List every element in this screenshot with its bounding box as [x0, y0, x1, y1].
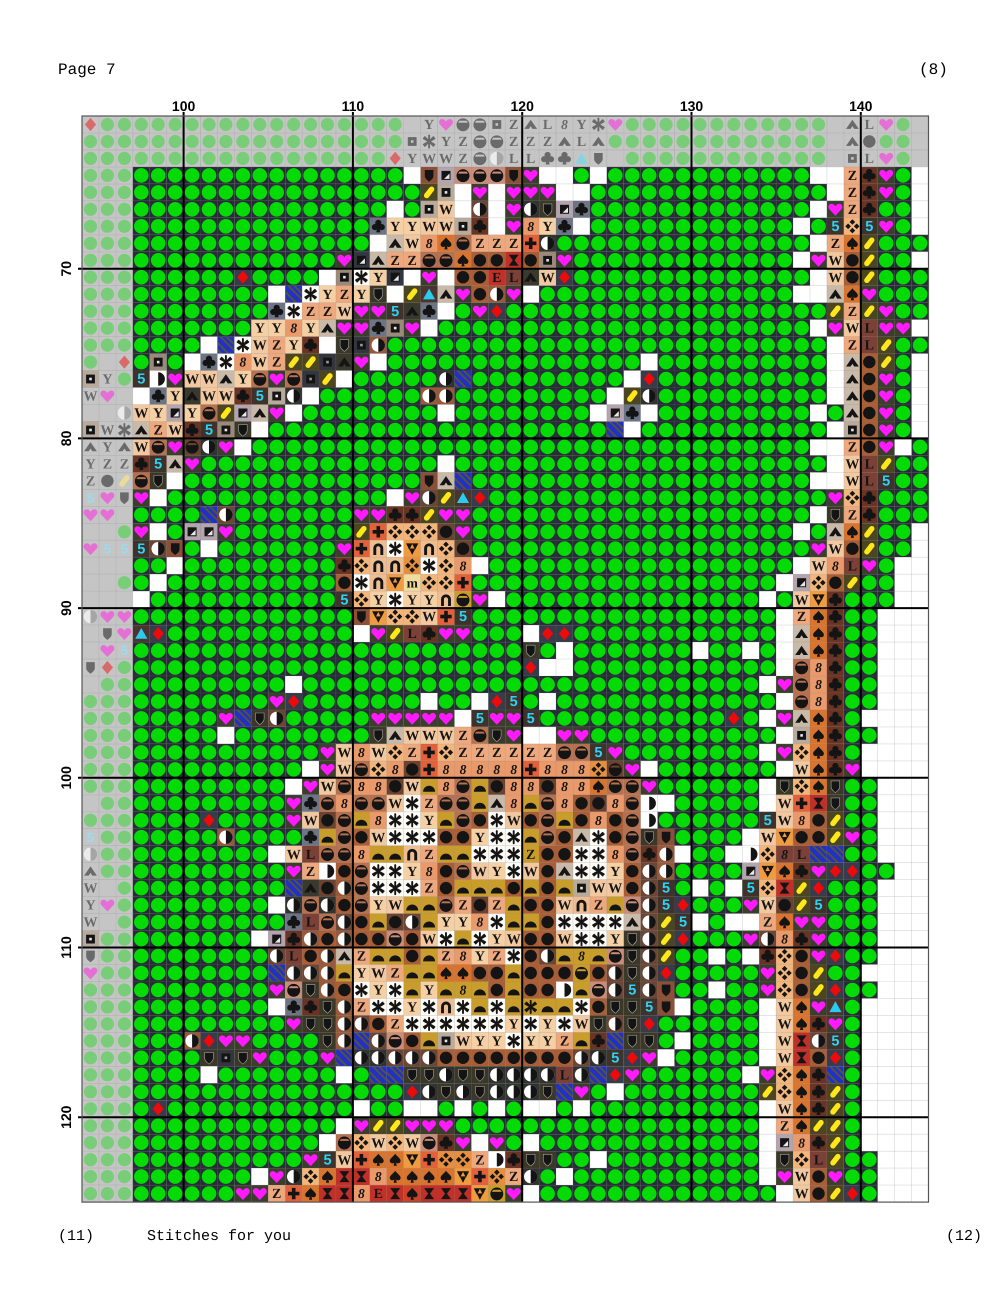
svg-text:130: 130 [680, 98, 704, 114]
svg-text:140: 140 [849, 98, 873, 114]
svg-text:110: 110 [342, 98, 365, 114]
svg-text:100: 100 [58, 766, 74, 790]
svg-text:70: 70 [58, 261, 74, 277]
svg-text:Page 7: Page 7 [58, 61, 116, 79]
svg-text:Stitches for you: Stitches for you [147, 1228, 291, 1245]
svg-text:110: 110 [58, 936, 74, 959]
svg-text:100: 100 [172, 98, 196, 114]
svg-text:120: 120 [511, 98, 535, 114]
svg-text:(11): (11) [58, 1228, 94, 1245]
svg-text:80: 80 [58, 430, 74, 446]
svg-text:120: 120 [58, 1105, 74, 1129]
svg-text:(12): (12) [946, 1228, 982, 1245]
svg-text:(8): (8) [919, 61, 948, 79]
svg-text:90: 90 [58, 600, 74, 616]
